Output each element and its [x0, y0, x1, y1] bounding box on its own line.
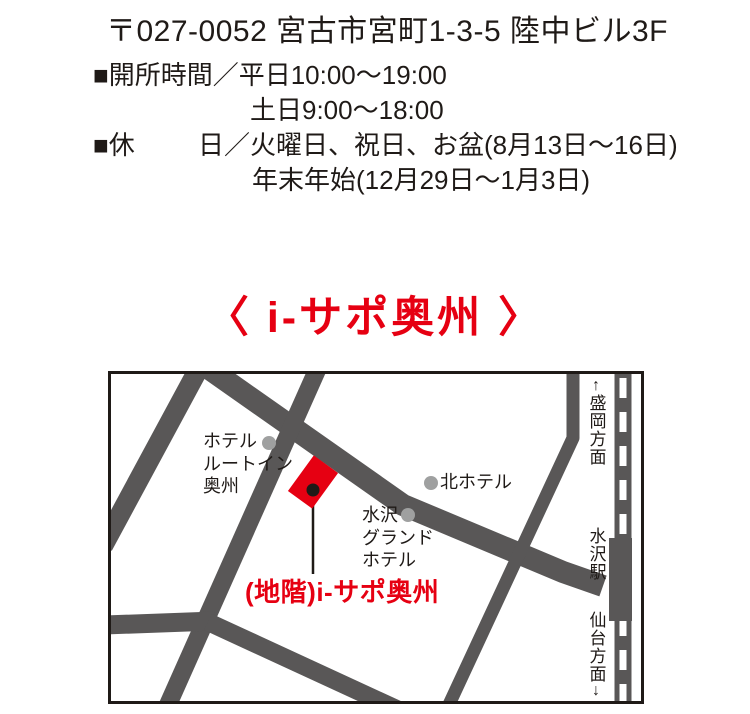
holiday-value: 日／火曜日、祝日、お盆(8月13日〜16日) — [198, 128, 678, 163]
holiday-yearend-text: 年末年始(12月29日〜1月3日) — [252, 165, 590, 195]
access-map: ホテル ルートイン 奥州 北ホテル 水沢 グランド ホテル (地階)i-サポ奥州… — [108, 371, 644, 704]
road-bottom-diagonal — [208, 622, 401, 701]
label-mizusawa-grand-hotel: 水沢 グランド ホテル — [362, 504, 434, 572]
road-left-horizontal — [111, 621, 215, 625]
address-line: 〒027-0052 宮古市宮町1-3-5 陸中ビル3F — [106, 6, 668, 50]
kita-hotel-dot — [424, 476, 438, 490]
road-upper-left — [111, 374, 199, 546]
mizusawa-station-text: 水沢駅 — [588, 527, 605, 581]
opening-hours-weekend: 土日9:00〜18:00 — [93, 93, 590, 128]
opening-hours-weekday: ■開所時間／平日10:00〜19:00 — [93, 58, 590, 93]
map-canvas: ホテル ルートイン 奥州 北ホテル 水沢 グランド ホテル (地階)i-サポ奥州… — [111, 374, 641, 701]
map-title: 〈 i-サポ奥州 〉 — [0, 290, 750, 346]
label-sendai-direction: 仙台方面 ↓ — [577, 611, 615, 699]
flyer-page: 〒027-0052 宮古市宮町1-3-5 陸中ビル3F ■開所時間／平日10:0… — [0, 0, 750, 714]
morioka-direction-text: 盛岡方面 — [588, 394, 605, 466]
label-isapo-building: (地階)i-サポ奥州 — [245, 572, 439, 609]
isapo-location-dot — [307, 484, 320, 497]
up-arrow-icon: ↑ — [592, 378, 600, 394]
sendai-direction-text: 仙台方面 — [588, 611, 605, 683]
road-steep-center — [163, 374, 318, 701]
label-mizusawa-station: 水沢駅 — [577, 527, 615, 581]
label-morioka-direction: ↑ 盛岡方面 — [577, 378, 615, 466]
holiday-label: ■休 — [93, 130, 135, 160]
holiday-row: ■休 日／火曜日、祝日、お盆(8月13日〜16日) — [93, 128, 590, 163]
holiday-yearend-row: 年末年始(12月29日〜1月3日) — [93, 163, 590, 198]
down-arrow-icon: ↓ — [592, 683, 600, 699]
schedule-block: ■開所時間／平日10:00〜19:00 土日9:00〜18:00 ■休 日／火曜… — [93, 58, 590, 198]
label-kita-hotel: 北ホテル — [440, 471, 512, 493]
opening-hours-weekend-text: 土日9:00〜18:00 — [250, 95, 444, 125]
label-hotel-routeinn: ホテル ルートイン 奥州 — [203, 430, 293, 498]
